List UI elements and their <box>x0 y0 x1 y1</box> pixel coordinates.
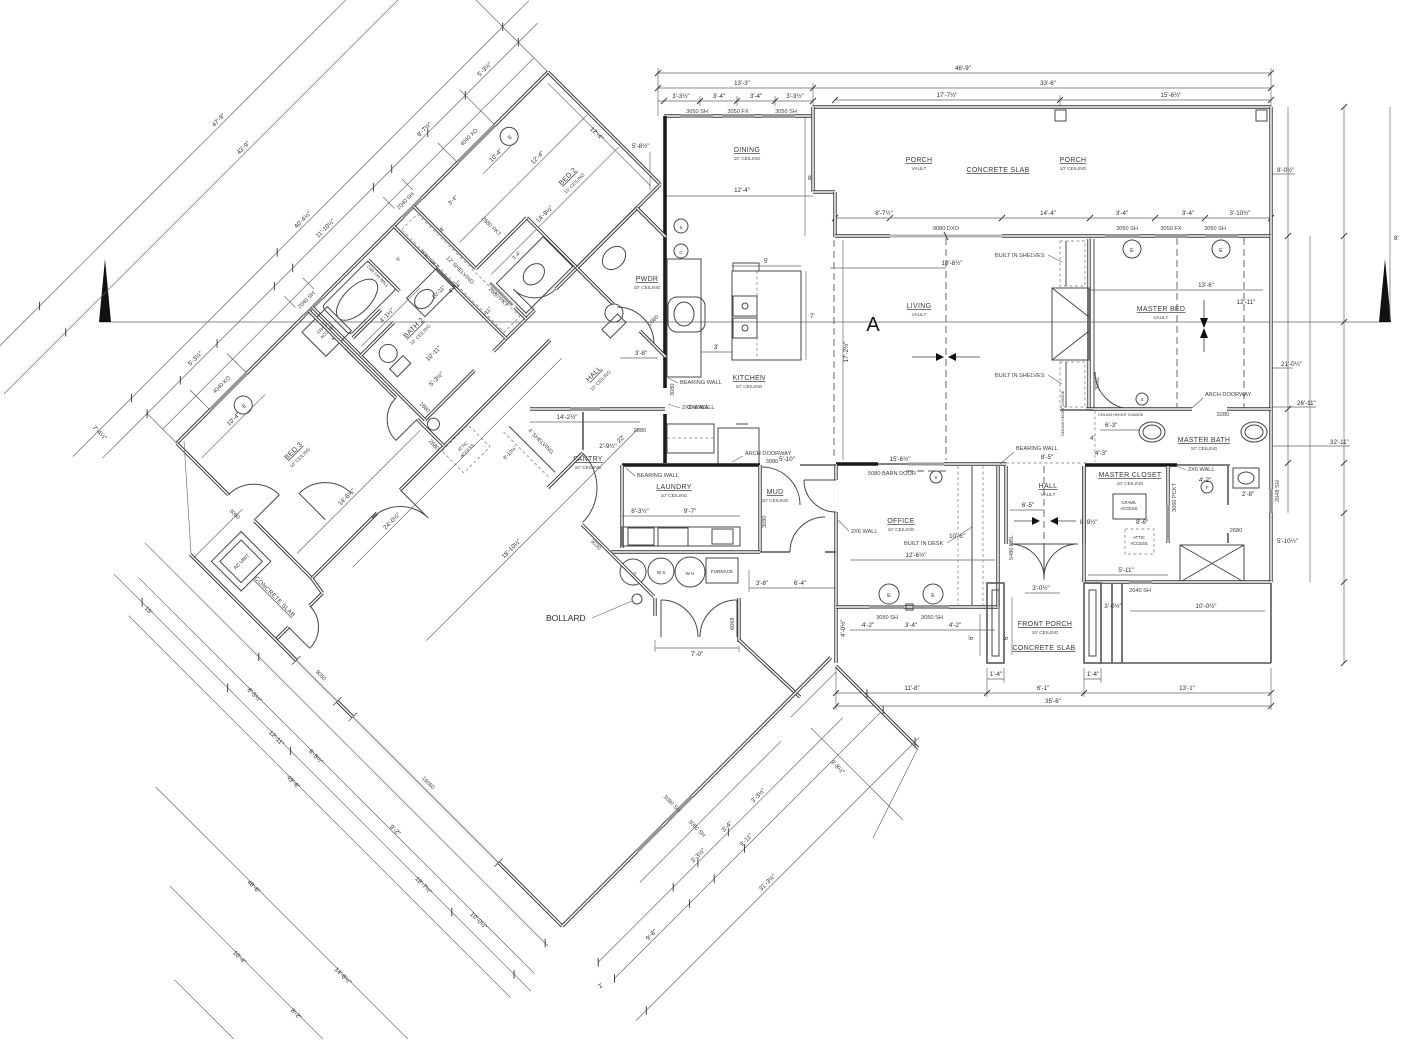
svg-text:BUILT IN SHELVES: BUILT IN SHELVES <box>995 373 1045 379</box>
svg-text:10'-0½": 10'-0½" <box>1196 603 1217 610</box>
svg-text:12'-4": 12'-4" <box>734 187 750 194</box>
svg-text:ATTIC: ATTIC <box>1133 535 1145 540</box>
svg-text:DINING: DINING <box>734 147 760 154</box>
svg-text:3050 SH: 3050 SH <box>921 615 943 621</box>
svg-text:BUILT IN DESK: BUILT IN DESK <box>904 541 944 547</box>
svg-text:10' CEILING: 10' CEILING <box>1060 166 1087 172</box>
svg-text:HALL: HALL <box>1039 483 1058 490</box>
svg-text:VAULT: VAULT <box>912 312 927 318</box>
svg-text:3080: 3080 <box>1095 378 1101 390</box>
svg-text:ACCESS: ACCESS <box>1130 541 1147 546</box>
svg-text:4'-2": 4'-2" <box>1199 477 1211 484</box>
svg-text:8': 8' <box>1394 235 1399 242</box>
svg-text:10' CEILING: 10' CEILING <box>575 465 602 471</box>
svg-text:26'-11": 26'-11" <box>1297 400 1316 407</box>
svg-text:21'-0½": 21'-0½" <box>1281 361 1302 368</box>
svg-text:VAULT: VAULT <box>912 166 927 172</box>
svg-text:7'-0": 7'-0" <box>691 651 703 658</box>
svg-text:2'-9½": 2'-9½" <box>599 443 616 450</box>
svg-text:5'-10": 5'-10" <box>779 456 795 463</box>
svg-text:CRAWL: CRAWL <box>1122 500 1138 505</box>
svg-text:5'-11": 5'-11" <box>1118 567 1133 574</box>
svg-text:4'-0½": 4'-0½" <box>840 620 847 637</box>
svg-text:PORCH: PORCH <box>906 157 933 164</box>
svg-text:BEARING WALL: BEARING WALL <box>637 473 679 479</box>
svg-text:E: E <box>887 593 891 599</box>
svg-text:3080: 3080 <box>762 516 768 528</box>
svg-text:F: F <box>1206 485 1209 490</box>
svg-text:E: E <box>1219 248 1223 254</box>
svg-text:LIVING: LIVING <box>907 303 932 310</box>
svg-text:13'-6": 13'-6" <box>1198 282 1214 289</box>
svg-text:3050 SH: 3050 SH <box>1204 226 1226 232</box>
svg-text:ACCESS: ACCESS <box>1120 506 1137 511</box>
svg-text:7': 7' <box>810 314 814 320</box>
svg-text:2048 SH: 2048 SH <box>1275 480 1281 502</box>
svg-text:VAULT: VAULT <box>1154 315 1169 321</box>
svg-text:10' CEILING: 10' CEILING <box>1117 481 1144 487</box>
svg-text:13'-3": 13'-3" <box>734 80 750 87</box>
svg-text:5'-10½": 5'-10½" <box>1277 538 1298 545</box>
svg-text:3280: 3280 <box>1217 412 1229 418</box>
svg-text:W S: W S <box>657 570 666 575</box>
svg-text:10' CEILING: 10' CEILING <box>1191 446 1218 452</box>
svg-text:2X6 WALL: 2X6 WALL <box>688 405 715 411</box>
svg-text:6': 6' <box>1003 635 1010 640</box>
svg-text:A: A <box>866 314 880 336</box>
svg-text:CONCRETE SLAB: CONCRETE SLAB <box>1012 645 1075 652</box>
svg-text:4'-2": 4'-2" <box>862 622 874 629</box>
svg-text:PWDR: PWDR <box>636 276 659 283</box>
svg-text:15'-6½": 15'-6½" <box>1161 92 1182 99</box>
svg-text:5480 DBL: 5480 DBL <box>1009 535 1015 560</box>
svg-text:LAUNDRY: LAUNDRY <box>656 484 691 491</box>
svg-text:W H: W H <box>686 571 695 576</box>
svg-text:8'-5": 8'-5" <box>1041 454 1053 461</box>
svg-text:2X6 WALL: 2X6 WALL <box>851 529 878 535</box>
svg-text:2040 SH: 2040 SH <box>1129 588 1151 594</box>
svg-text:10' CEILING: 10' CEILING <box>736 384 763 390</box>
svg-text:3'-4": 3'-4" <box>905 622 917 629</box>
svg-text:12'-6½": 12'-6½" <box>906 552 927 559</box>
svg-text:8'-7½": 8'-7½" <box>875 210 892 217</box>
svg-text:BUILT IN SHELVES: BUILT IN SHELVES <box>995 253 1045 259</box>
svg-text:17'-7½": 17'-7½" <box>937 92 958 99</box>
svg-text:3'-8": 3'-8" <box>756 580 768 587</box>
svg-text:15'-6½": 15'-6½" <box>890 456 911 463</box>
svg-text:32'-11": 32'-11" <box>1330 439 1349 446</box>
svg-text:14'-2½": 14'-2½" <box>557 414 578 421</box>
svg-text:E: E <box>931 593 935 599</box>
svg-text:3'-0½": 3'-0½" <box>1032 585 1049 592</box>
svg-text:3050 FX: 3050 FX <box>1160 226 1181 232</box>
svg-text:3060 PCKT: 3060 PCKT <box>1172 483 1178 512</box>
svg-text:PORCH: PORCH <box>1060 157 1087 164</box>
svg-text:4': 4' <box>1090 435 1095 442</box>
svg-text:MASTER CLOSET: MASTER CLOSET <box>1098 472 1161 479</box>
svg-text:6'-5": 6'-5" <box>1022 502 1034 509</box>
svg-text:6'-1": 6'-1" <box>1037 685 1049 692</box>
svg-text:10' CEILING: 10' CEILING <box>734 156 761 162</box>
svg-text:3'-0½": 3'-0½" <box>1104 603 1121 610</box>
svg-text:9080 DXO: 9080 DXO <box>933 226 960 232</box>
svg-text:FRONT PORCH: FRONT PORCH <box>1018 621 1073 628</box>
svg-text:10' CEILING: 10' CEILING <box>1032 630 1059 636</box>
svg-text:14'-4": 14'-4" <box>1040 210 1056 217</box>
svg-text:10' CEILING: 10' CEILING <box>634 285 661 291</box>
svg-text:S: S <box>1140 397 1143 402</box>
svg-text:9'-7": 9'-7" <box>684 508 696 515</box>
svg-text:S: S <box>934 475 937 480</box>
svg-text:3'-3½": 3'-3½" <box>786 93 803 100</box>
svg-text:4'-2": 4'-2" <box>949 622 961 629</box>
svg-text:12'-11": 12'-11" <box>1237 299 1256 306</box>
svg-text:18'-8½": 18'-8½" <box>942 260 963 267</box>
svg-text:1'-4": 1'-4" <box>1087 671 1099 678</box>
svg-text:33'-6": 33'-6" <box>1040 80 1056 87</box>
svg-text:MUD: MUD <box>767 489 784 496</box>
svg-text:3080: 3080 <box>670 384 676 396</box>
svg-text:4'-3": 4'-3" <box>1095 450 1107 457</box>
svg-text:3050 SH: 3050 SH <box>775 109 797 115</box>
svg-text:8'-6": 8'-6" <box>1136 520 1148 526</box>
svg-text:35'-6": 35'-6" <box>1045 698 1061 705</box>
svg-text:3050 SH: 3050 SH <box>876 615 898 621</box>
svg-text:CONCRETE SLAB: CONCRETE SLAB <box>966 167 1029 174</box>
svg-text:3'-8": 3'-8" <box>635 350 647 357</box>
svg-text:46'-9": 46'-9" <box>955 65 971 72</box>
svg-text:2'-8": 2'-8" <box>1242 491 1254 498</box>
svg-text:S: S <box>679 225 682 230</box>
svg-text:E: E <box>1130 248 1134 254</box>
svg-text:8'-3½": 8'-3½" <box>631 508 648 515</box>
svg-text:6'-3": 6'-3" <box>1105 422 1117 429</box>
svg-text:5080 BARN DOOR: 5080 BARN DOOR <box>868 471 916 477</box>
svg-text:CEILING HEIGHT CHANGE: CEILING HEIGHT CHANGE <box>1098 413 1144 417</box>
svg-text:VAULT: VAULT <box>1041 492 1056 498</box>
svg-text:CEILING HEIGHT CHANGE: CEILING HEIGHT CHANGE <box>1061 390 1065 436</box>
svg-text:10' CEILING: 10' CEILING <box>888 527 915 533</box>
svg-text:13'-1": 13'-1" <box>1179 685 1195 692</box>
svg-text:8'-0½": 8'-0½" <box>1277 167 1294 174</box>
svg-text:MASTER BATH: MASTER BATH <box>1178 437 1231 444</box>
svg-text:1'-4": 1'-4" <box>990 671 1002 678</box>
svg-text:2680: 2680 <box>1230 528 1242 534</box>
svg-text:3'-4": 3'-4" <box>713 93 725 100</box>
svg-text:5': 5' <box>764 258 769 265</box>
svg-text:6068: 6068 <box>730 618 736 630</box>
svg-text:OFFICE: OFFICE <box>887 518 914 525</box>
svg-text:11'-8": 11'-8" <box>904 685 919 692</box>
svg-text:FURNACE: FURNACE <box>711 569 733 574</box>
svg-text:3050 SH: 3050 SH <box>1116 226 1138 232</box>
svg-text:3080: 3080 <box>766 459 778 465</box>
svg-text:BEARING WALL: BEARING WALL <box>680 380 722 386</box>
svg-text:3'-4": 3'-4" <box>750 93 762 100</box>
svg-text:3'-4": 3'-4" <box>1182 210 1194 217</box>
svg-text:6': 6' <box>968 635 975 640</box>
svg-text:3'-10½": 3'-10½" <box>1230 210 1251 217</box>
svg-text:3050 FX: 3050 FX <box>727 109 748 115</box>
svg-text:5'-8½": 5'-8½" <box>632 143 649 150</box>
svg-text:3'-4": 3'-4" <box>1116 210 1128 217</box>
svg-text:3'-3½": 3'-3½" <box>672 93 689 100</box>
svg-text:BOLLARD: BOLLARD <box>546 613 586 623</box>
svg-text:2X6 WALL: 2X6 WALL <box>1188 467 1215 473</box>
svg-text:3': 3' <box>714 344 719 351</box>
svg-text:KITCHEN: KITCHEN <box>733 375 766 382</box>
svg-text:MASTER BED: MASTER BED <box>1137 306 1186 313</box>
svg-text:ARCH DOORWAY: ARCH DOORWAY <box>1205 392 1251 398</box>
svg-text:10' CEILING: 10' CEILING <box>661 493 688 499</box>
svg-text:BEARING WALL: BEARING WALL <box>1016 446 1058 452</box>
svg-text:17'-2½": 17'-2½" <box>843 342 850 363</box>
svg-text:3050 SH: 3050 SH <box>686 109 708 115</box>
svg-text:10' CEILING: 10' CEILING <box>762 498 789 504</box>
svg-text:6'-4": 6'-4" <box>794 580 806 587</box>
